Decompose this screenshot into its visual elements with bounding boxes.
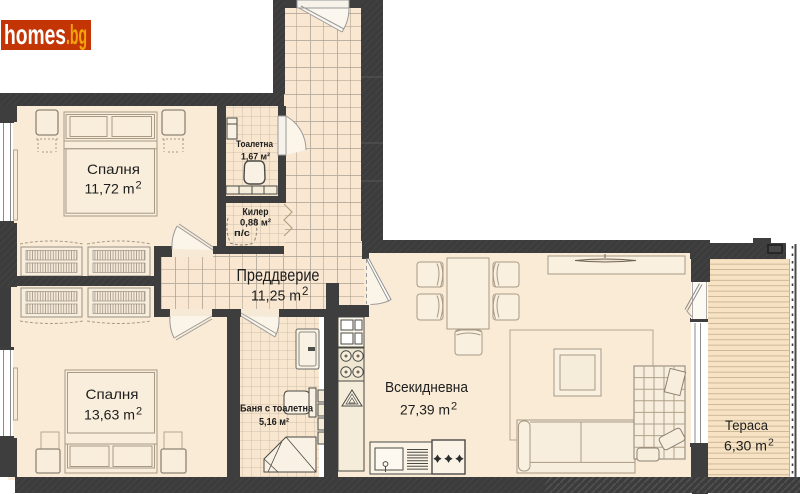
svg-text:2: 2: [302, 286, 308, 298]
svg-text:6,30 m: 6,30 m: [724, 439, 767, 454]
svg-text:5,16 м²: 5,16 м²: [259, 417, 290, 428]
svg-text:2: 2: [136, 180, 142, 192]
svg-text:.bg: .bg: [66, 19, 87, 50]
svg-text:2: 2: [451, 401, 457, 413]
svg-text:Тераса: Тераса: [725, 418, 768, 433]
svg-text:Спалня: Спалня: [87, 161, 140, 177]
svg-text:Всекидневна: Всекидневна: [385, 379, 469, 396]
svg-text:2: 2: [136, 406, 142, 418]
svg-text:11,25 m: 11,25 m: [251, 289, 301, 305]
svg-text:0,88 м²: 0,88 м²: [240, 218, 271, 229]
svg-text:Тоалетна: Тоалетна: [236, 139, 274, 150]
svg-text:Преддверие: Преддверие: [237, 265, 320, 285]
svg-text:Баня с тоалетна: Баня с тоалетна: [240, 404, 313, 415]
svg-text:Спалня: Спалня: [86, 386, 139, 402]
svg-text:11,72 m: 11,72 m: [85, 181, 135, 197]
svg-text:27,39 m: 27,39 m: [400, 402, 450, 418]
svg-text:2: 2: [768, 437, 774, 449]
svg-text:1,67 м²: 1,67 м²: [241, 152, 270, 163]
svg-text:homes: homes: [4, 19, 66, 50]
svg-text:13,63 m: 13,63 m: [84, 407, 135, 423]
svg-text:п/с: п/с: [234, 228, 250, 238]
svg-text:Килер: Килер: [243, 207, 269, 218]
